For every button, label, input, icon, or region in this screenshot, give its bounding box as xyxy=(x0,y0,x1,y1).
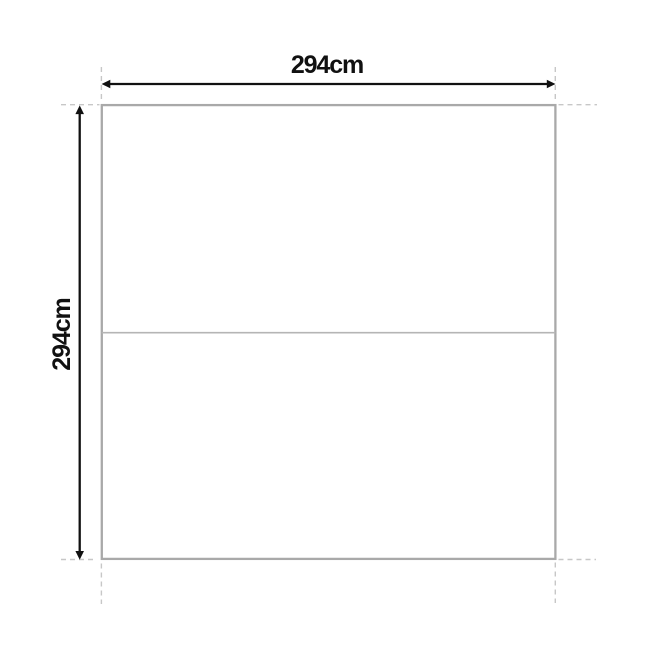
svg-text:294cm: 294cm xyxy=(48,298,76,370)
svg-text:294cm: 294cm xyxy=(291,51,363,79)
